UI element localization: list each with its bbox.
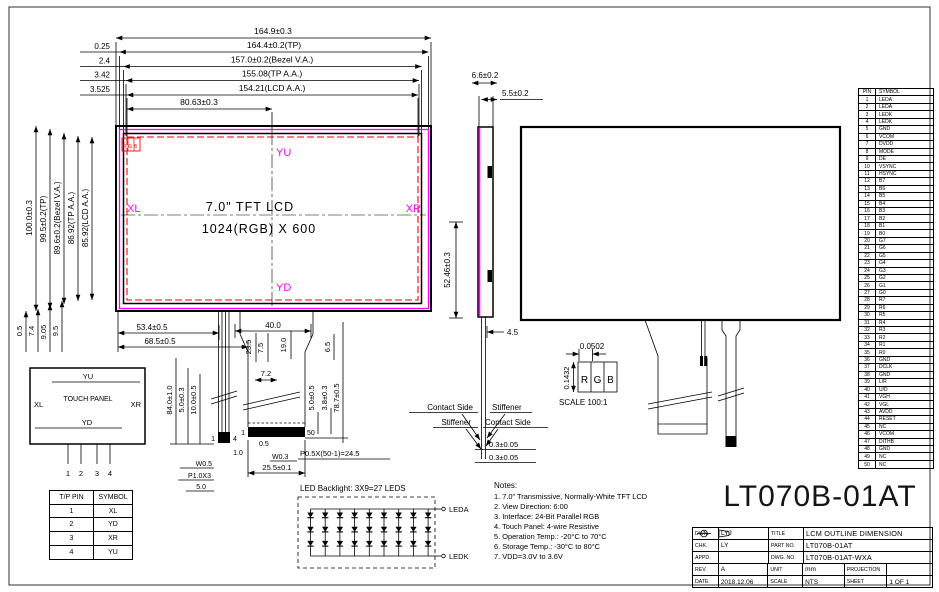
table-row: 44RESET <box>859 416 933 423</box>
table-row: 15B4 <box>859 201 933 208</box>
title-block-row: DATE 2018.12.06 SCALE NTS SHEET 1 OF 1 <box>693 576 932 588</box>
table-cell: 5 <box>859 126 876 132</box>
table-row: 42VGL <box>859 401 933 408</box>
table-cell: 21 <box>859 245 876 251</box>
table-row: 19B0 <box>859 230 933 237</box>
table-cell: YD <box>94 518 132 531</box>
dir-label-xr: XR <box>406 203 421 215</box>
table-cell: MODE <box>876 149 933 155</box>
table-row: 21G6 <box>859 245 933 252</box>
table-cell: G2 <box>876 275 933 281</box>
table-cell: 38 <box>859 372 876 378</box>
fpc-tails: 1 4 1 50 0.5 W0.3 1.0 25.5±0.1 P0.5X(50-… <box>165 311 390 491</box>
notes-list: 1. 7.0" Transmissive, Normally-White TFT… <box>494 492 719 562</box>
dim-label: P0.5X(50-1)=24.5 <box>300 449 359 458</box>
stiffener-label: Stiffener <box>492 403 522 412</box>
table-cell: 33 <box>859 334 876 340</box>
table-cell: SYMBOL <box>876 89 933 95</box>
table-row: 7DVDD <box>859 141 933 148</box>
dim-label: 3.525 <box>90 85 111 94</box>
table-cell: T/P PIN <box>50 491 94 504</box>
notes: Notes: 1. 7.0" Transmissive, Normally-Wh… <box>494 481 719 562</box>
led-title: LED Backlight: 3X9=27 LEDS <box>300 484 406 493</box>
table-row: 48GND <box>859 446 933 453</box>
table-row: 3XR <box>50 532 132 546</box>
table-cell: 41 <box>859 394 876 400</box>
title-block-row: APPD. DWG. NO. LT070B-01AT-WXA <box>693 552 932 564</box>
dir-label-yd: YD <box>276 282 291 294</box>
table-row: 27G0 <box>859 290 933 297</box>
table-row: T/P PINSYMBOL <box>50 491 132 505</box>
dim-label: 164.4±0.2(TP) <box>247 40 301 50</box>
table-cell: LEDA <box>876 104 933 110</box>
table-cell: G1 <box>876 282 933 288</box>
pin-table: PINSYMBOL1LEDA2LEDA3LEDK4LEDK5GND6VCOM7D… <box>858 88 934 469</box>
dim-label: 9.05 <box>39 325 48 340</box>
table-cell: 1 <box>50 505 94 518</box>
unit-label: UNIT <box>768 564 803 575</box>
table-cell: 37 <box>859 364 876 370</box>
table-row: 1LEDA <box>859 96 933 103</box>
table-cell: 1 <box>859 96 876 102</box>
dwg-no-value: LT070B-01AT-WXA <box>804 552 872 563</box>
pin-label: 4 <box>233 436 237 443</box>
appd-value <box>719 552 769 563</box>
table-cell: 43 <box>859 409 876 415</box>
title-block-row: REV. A UNIT mm PROJECTION <box>693 564 932 576</box>
table-row: 46VCOM <box>859 431 933 438</box>
rev-label: REV. <box>693 564 719 575</box>
table-cell: VGH <box>876 394 933 400</box>
dim-label: 154.21(LCD A.A.) <box>239 83 306 93</box>
chk-value: LY <box>719 540 769 551</box>
table-cell: 7 <box>859 141 876 147</box>
title-label: TITLE <box>769 528 804 539</box>
table-cell: 35 <box>859 349 876 355</box>
table-row: 47DITHB <box>859 439 933 446</box>
table-cell: 20 <box>859 238 876 244</box>
projection-label: PROJECTION <box>845 564 888 575</box>
table-cell: B4 <box>876 201 933 207</box>
table-cell: 12 <box>859 178 876 184</box>
table-cell: DITHB <box>876 439 933 445</box>
left-dimensions: 100.0±0.3 99.5±0.2(TP) 89.6±0.2(Bezel V.… <box>15 126 92 352</box>
table-cell: 45 <box>859 424 876 430</box>
table-cell: DCLK <box>876 364 933 370</box>
note-item: 3. Interface: 24-Bit Parallel RGB <box>494 512 719 522</box>
table-cell: R5 <box>876 312 933 318</box>
note-item: 5. Operation Temp.: -20°C to 70°C <box>494 532 719 542</box>
dir-label-yu: YU <box>276 147 291 159</box>
table-cell: 19 <box>859 230 876 236</box>
table-row: 37DCLK <box>859 364 933 371</box>
pixel-letter: G <box>594 375 602 386</box>
drawing-sheet: RGB YU YD XL XR 7.0" TFT LCD 1024(RGB) X… <box>0 0 939 592</box>
top-dimensions: 164.9±0.3 164.4±0.2(TP) 157.0±0.2(Bezel … <box>80 26 431 137</box>
table-cell: GND <box>876 446 933 452</box>
table-row: 13B6 <box>859 186 933 193</box>
tp-pin-number: 2 <box>79 469 83 478</box>
table-cell: 4 <box>50 546 94 560</box>
projection-symbol-cell <box>887 564 932 575</box>
table-cell: B2 <box>876 215 933 221</box>
tp-pin-number: 3 <box>95 469 99 478</box>
dim-label: 157.0±0.2(Bezel V.A.) <box>231 55 313 65</box>
part-no-label: PART NO. <box>769 540 804 551</box>
tp-pin-number: 1 <box>66 469 70 478</box>
table-row: 20G7 <box>859 238 933 245</box>
dim-label: 6.6±0.2 <box>472 71 499 80</box>
contact-side-label: Contact Side <box>485 418 531 427</box>
dim-label: 7.2 <box>261 369 271 378</box>
rgb-pixel-mark: RGB <box>122 138 140 151</box>
table-cell: 6 <box>859 134 876 140</box>
led-grid <box>307 509 431 556</box>
table-cell: B5 <box>876 193 933 199</box>
table-cell: 30 <box>859 312 876 318</box>
table-cell: 8 <box>859 149 876 155</box>
table-row: 26G1 <box>859 282 933 289</box>
dim-label: 5.0±0.3 <box>177 388 186 413</box>
sheet-label: SHEET <box>845 576 888 588</box>
title-block: DWN. LYJ TITLE LCM OUTLINE DIMENSION CHK… <box>692 527 933 588</box>
table-cell: 23 <box>859 260 876 266</box>
table-row: 3LEDK <box>859 111 933 118</box>
dim-label: 0.5 <box>259 441 269 448</box>
table-cell: 42 <box>859 401 876 407</box>
dim-label: 10.0±0.5 <box>189 385 198 414</box>
dir-label-xl: XL <box>127 203 140 215</box>
tp-title: TOUCH PANEL <box>63 396 112 403</box>
table-row: 30R5 <box>859 312 933 319</box>
table-cell: VGL <box>876 401 933 407</box>
appd-label: APPD. <box>693 552 719 563</box>
table-cell: 25 <box>859 275 876 281</box>
table-row: 49NC <box>859 453 933 460</box>
scale-value: NTS <box>803 576 845 588</box>
contact-side-label: Contact Side <box>427 403 473 412</box>
table-row: 38GND <box>859 372 933 379</box>
pixel-letter: R <box>581 375 588 386</box>
sheet-value: 1 OF 1 <box>887 576 932 588</box>
title-value: LCM OUTLINE DIMENSION <box>804 528 903 539</box>
dim-label: 5.5±0.2 <box>502 89 529 98</box>
tp-label-xr: XR <box>131 400 142 409</box>
part-no-value: LT070B-01AT <box>804 540 853 551</box>
table-cell: NC <box>876 424 933 430</box>
chk-label: CHK. <box>693 540 719 551</box>
dim-label: 19.0 <box>279 338 288 353</box>
table-row: 25G2 <box>859 275 933 282</box>
table-cell: L/R <box>876 379 933 385</box>
rev-value: A <box>719 564 769 575</box>
date-value: 2018.12.06 <box>719 576 769 588</box>
dim-label: 9.5 <box>51 326 60 336</box>
table-cell: 13 <box>859 186 876 192</box>
dim-label: 52.46±0.3 <box>443 252 452 288</box>
table-cell: R3 <box>876 327 933 333</box>
table-row: 23G4 <box>859 260 933 267</box>
table-row: 50NC <box>859 461 933 468</box>
table-cell: 2 <box>50 518 94 531</box>
table-row: 14B5 <box>859 193 933 200</box>
dim-label: 84.0±1.0 <box>165 385 174 414</box>
dim-label: 68.5±0.5 <box>144 337 176 346</box>
dim-label: 80.63±0.3 <box>180 97 218 107</box>
table-cell: 11 <box>859 171 876 177</box>
dim-label: 155.08(TP A.A.) <box>242 69 302 79</box>
dim-label: W0.3 <box>272 454 288 461</box>
table-cell: DVDD <box>876 141 933 147</box>
table-cell: 49 <box>859 453 876 459</box>
table-cell: NC <box>876 453 933 459</box>
unit-value: mm <box>803 564 845 575</box>
table-row: 18B1 <box>859 223 933 230</box>
lcd-resolution-label: 1024(RGB) X 600 <box>202 222 316 236</box>
table-row: 9DE <box>859 156 933 163</box>
right-dimension: 52.46±0.3 <box>443 222 463 318</box>
table-row: 29R6 <box>859 305 933 312</box>
dim-label: P1.0X3 <box>188 473 211 480</box>
part-number: LT070B-01AT <box>706 480 934 514</box>
table-cell: U/D <box>876 387 933 393</box>
table-row: 12B7 <box>859 178 933 185</box>
table-row: 1XL <box>50 505 132 519</box>
dim-label: 0.25 <box>94 42 110 51</box>
table-cell: G7 <box>876 238 933 244</box>
table-cell: LEDK <box>876 111 933 117</box>
table-cell: 46 <box>859 431 876 437</box>
table-row: 31R4 <box>859 320 933 327</box>
dim-label: 1.0 <box>233 450 243 457</box>
dim-label: 6.5 <box>323 342 332 352</box>
table-cell: AVDD <box>876 409 933 415</box>
dim-label: W0.5 <box>196 461 212 468</box>
table-cell: 16 <box>859 208 876 214</box>
table-row: 6VCOM <box>859 134 933 141</box>
table-cell: G0 <box>876 290 933 296</box>
note-item: 4. Touch Panel: 4-wire Resistive <box>494 522 719 532</box>
led-backlight: LED Backlight: 3X9=27 LEDS LEDA LEDK <box>298 484 469 568</box>
table-cell: 27 <box>859 290 876 296</box>
rgb-mark-label: RGB <box>123 144 139 150</box>
table-cell: 36 <box>859 357 876 363</box>
table-row: 4LEDK <box>859 119 933 126</box>
led-anode-label: LEDA <box>449 505 469 514</box>
table-cell: GND <box>876 357 933 363</box>
table-row: 5GND <box>859 126 933 133</box>
table-cell: XR <box>94 532 132 545</box>
table-cell: B3 <box>876 208 933 214</box>
table-row: 17B2 <box>859 215 933 222</box>
dim-label: 164.9±0.3 <box>254 26 292 36</box>
led-cathode-label: LEDK <box>449 552 469 561</box>
table-cell: 40 <box>859 387 876 393</box>
table-cell: VCOM <box>876 134 933 140</box>
table-cell: HSYNC <box>876 171 933 177</box>
table-cell: B6 <box>876 186 933 192</box>
tp-pin-number: 4 <box>108 469 112 478</box>
tp-label-yu: YU <box>83 372 93 381</box>
table-row: 28R7 <box>859 297 933 304</box>
table-row: 39L/R <box>859 379 933 386</box>
table-cell: 18 <box>859 223 876 229</box>
dim-label: 25.5±0.1 <box>262 463 291 472</box>
dim-label: 85.92(LCD A.A.) <box>81 189 90 248</box>
tp-label-xl: XL <box>34 400 43 409</box>
table-cell: B1 <box>876 223 933 229</box>
dim-label: 78.7±0.5 <box>332 383 341 412</box>
table-cell: 48 <box>859 446 876 452</box>
table-cell: G3 <box>876 268 933 274</box>
pixel-letter: B <box>607 375 614 386</box>
table-cell: 17 <box>859 215 876 221</box>
table-cell: R6 <box>876 305 933 311</box>
table-row: 22G5 <box>859 253 933 260</box>
dim-label: 2.4 <box>99 57 111 66</box>
table-cell: B0 <box>876 230 933 236</box>
dim-label: 0.5 <box>15 326 24 336</box>
dim-label: 100.0±0.3 <box>25 200 34 236</box>
table-cell: SYMBOL <box>94 491 132 504</box>
table-cell: 10 <box>859 163 876 169</box>
table-cell: 3 <box>50 532 94 545</box>
table-row: 33R2 <box>859 334 933 341</box>
dim-label: 4.5 <box>507 328 519 337</box>
note-item: 1. 7.0" Transmissive, Normally-White TFT… <box>494 492 719 502</box>
dim-label: 3.42 <box>94 71 110 80</box>
date-label: DATE <box>693 576 719 588</box>
table-cell: B7 <box>876 178 933 184</box>
table-row: 8MODE <box>859 149 933 156</box>
table-cell: PIN <box>859 89 876 95</box>
below-dimensions: 53.4±0.5 68.5±0.5 40.0 23.5 7.5 19.0 6.5… <box>118 311 334 380</box>
table-row: 41VGH <box>859 394 933 401</box>
table-cell: R4 <box>876 320 933 326</box>
table-cell: R0 <box>876 349 933 355</box>
table-cell: LEDA <box>876 96 933 102</box>
dim-label: 7.5 <box>256 343 265 353</box>
table-cell: G4 <box>876 260 933 266</box>
table-cell: G6 <box>876 245 933 251</box>
table-cell: NC <box>876 461 933 468</box>
table-cell: 24 <box>859 268 876 274</box>
dim-label: 89.6±0.2(Bezel V.A.) <box>53 181 62 254</box>
note-item: 2. View Direction: 6:00 <box>494 502 719 512</box>
tp-label-yd: YD <box>82 418 93 427</box>
stiffener-label: Stiffener <box>441 418 471 427</box>
table-cell: 26 <box>859 282 876 288</box>
table-cell: YU <box>94 546 132 560</box>
table-cell: 34 <box>859 342 876 348</box>
table-cell: 4 <box>859 119 876 125</box>
side-view: 6.6±0.2 5.5±0.2 4.5 <box>472 71 543 459</box>
table-cell: GND <box>876 372 933 378</box>
front-view: RGB YU YD XL XR 7.0" TFT LCD 1024(RGB) X… <box>116 126 431 311</box>
table-row: 24G3 <box>859 268 933 275</box>
table-cell: 15 <box>859 201 876 207</box>
table-cell: 50 <box>859 461 876 468</box>
table-row: 32R3 <box>859 327 933 334</box>
pin-label: 1 <box>211 436 215 443</box>
table-cell: R1 <box>876 342 933 348</box>
dim-label: 5.0±0.5 <box>307 386 316 411</box>
tp-pin-table: T/P PINSYMBOL1XL2YD3XR4YU <box>49 490 133 560</box>
dwg-no-label: DWG. NO. <box>769 552 804 563</box>
table-cell: XL <box>94 505 132 518</box>
table-cell: DE <box>876 156 933 162</box>
table-row: 40U/D <box>859 387 933 394</box>
dim-label: 7.4 <box>27 326 36 336</box>
notes-title: Notes: <box>494 481 719 491</box>
table-cell: 2 <box>859 104 876 110</box>
tail-annotations: Contact Side Stiffener Stiffener Contact… <box>409 403 548 463</box>
table-cell: 31 <box>859 320 876 326</box>
table-cell: 47 <box>859 439 876 445</box>
table-cell: 3 <box>859 111 876 117</box>
table-row: 36GND <box>859 357 933 364</box>
dim-label: 99.5±0.2(TP) <box>39 195 48 242</box>
note-item: 7. VDD=3.0V to 3.6V <box>494 552 719 562</box>
table-cell: 39 <box>859 379 876 385</box>
table-row: 11HSYNC <box>859 171 933 178</box>
lcd-size-label: 7.0" TFT LCD <box>206 200 294 214</box>
dim-label: 53.4±0.5 <box>136 323 168 332</box>
table-cell: VCOM <box>876 431 933 437</box>
table-cell: RESET <box>876 416 933 422</box>
dim-label: 0.3±0.05 <box>489 453 518 462</box>
table-row: 16B3 <box>859 208 933 215</box>
scale-label: SCALE <box>768 576 803 588</box>
table-row: 43AVDD <box>859 409 933 416</box>
title-block-row: CHK. LY PART NO. LT070B-01AT <box>693 540 932 552</box>
pixel-detail: 0.0502 R G B 0.1432 SCALE 100:1 <box>559 342 617 407</box>
table-cell: LEDK <box>876 119 933 125</box>
table-cell: G5 <box>876 253 933 259</box>
table-cell: 9 <box>859 156 876 162</box>
table-row: 45NC <box>859 424 933 431</box>
table-row: 2YD <box>50 518 132 532</box>
table-cell: 22 <box>859 253 876 259</box>
table-cell: GND <box>876 126 933 132</box>
table-row: 10VSYNC <box>859 163 933 170</box>
touch-panel-schematic: YU TOUCH PANEL XL XR YD 1 2 3 4 <box>30 368 145 478</box>
table-row: 2LEDA <box>859 104 933 111</box>
table-cell: 28 <box>859 297 876 303</box>
table-row: 35R0 <box>859 349 933 356</box>
pin-label: 50 <box>307 430 315 437</box>
note-item: 6. Storage Temp.: -30°C to 80°C <box>494 542 719 552</box>
dim-label: 5.0 <box>196 484 206 491</box>
dim-label: 0.3±0.05 <box>489 440 518 449</box>
dim-label: 0.1432 <box>562 367 571 390</box>
pin-label: 1 <box>241 430 245 437</box>
table-row: 4YU <box>50 546 132 560</box>
table-cell: 29 <box>859 305 876 311</box>
table-row: 34R1 <box>859 342 933 349</box>
table-cell: 32 <box>859 327 876 333</box>
table-cell: 14 <box>859 193 876 199</box>
table-cell: R2 <box>876 334 933 340</box>
table-cell: 44 <box>859 416 876 422</box>
dim-label: 3.8±0.3 <box>320 386 329 411</box>
table-cell: VSYNC <box>876 163 933 169</box>
dim-label: 40.0 <box>265 321 281 330</box>
dim-label: 86.92(TP A.A.) <box>67 192 76 245</box>
table-cell: R7 <box>876 297 933 303</box>
table-row: PINSYMBOL <box>859 89 933 96</box>
scale-label: SCALE 100:1 <box>559 398 608 407</box>
